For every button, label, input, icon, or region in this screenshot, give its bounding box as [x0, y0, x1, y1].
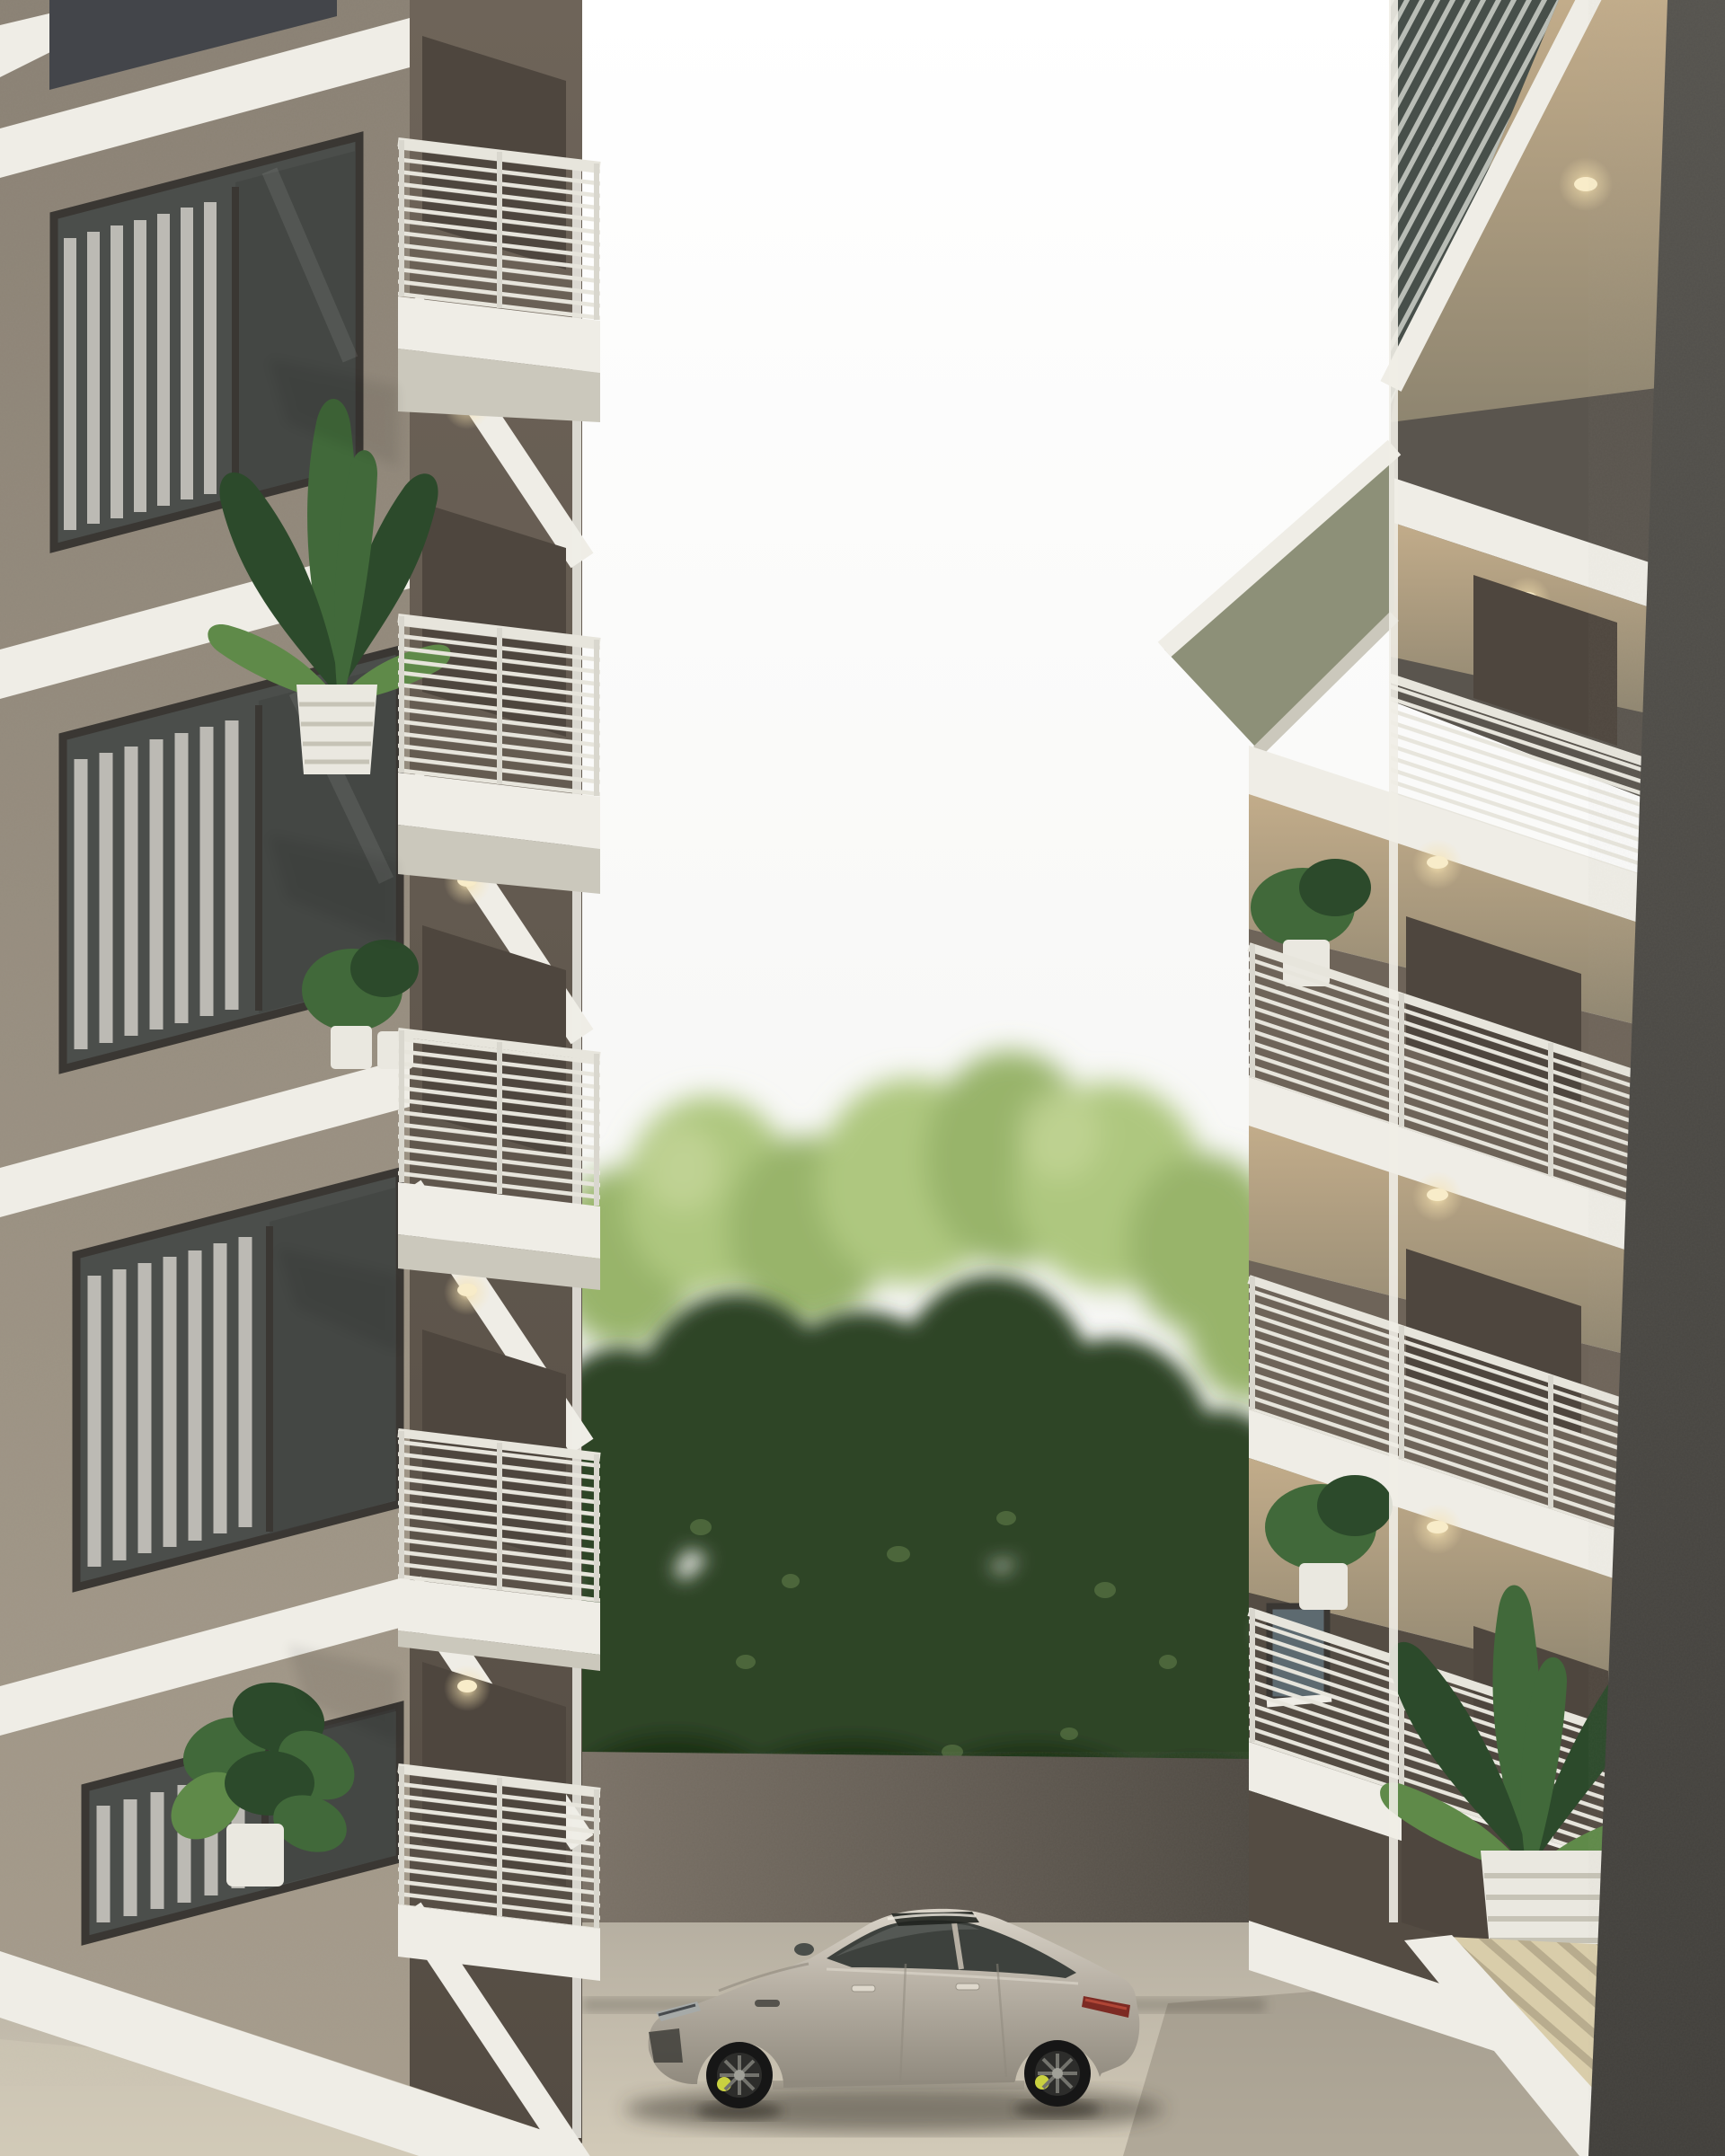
front-intake: [649, 2028, 683, 2063]
door-handle: [956, 1984, 979, 1990]
corner-mullion: [1389, 0, 1398, 1922]
door-handle: [852, 1985, 875, 1992]
car-wheel: [706, 2042, 773, 2108]
balcony: [398, 139, 600, 422]
architectural-render: Photorealistic daylight rendering of a r…: [0, 0, 1725, 2156]
balcony: [398, 1430, 600, 1671]
right-upper-bays: [1391, 0, 1671, 901]
plant-pot: [296, 685, 377, 774]
rocker-panel: [773, 2081, 1024, 2090]
left-building: [0, 0, 600, 2156]
courtyard-scene: [0, 0, 1725, 2156]
side-mirror: [794, 1943, 814, 1956]
fender-vent: [755, 2000, 780, 2007]
car-wheel: [1024, 2040, 1091, 2107]
